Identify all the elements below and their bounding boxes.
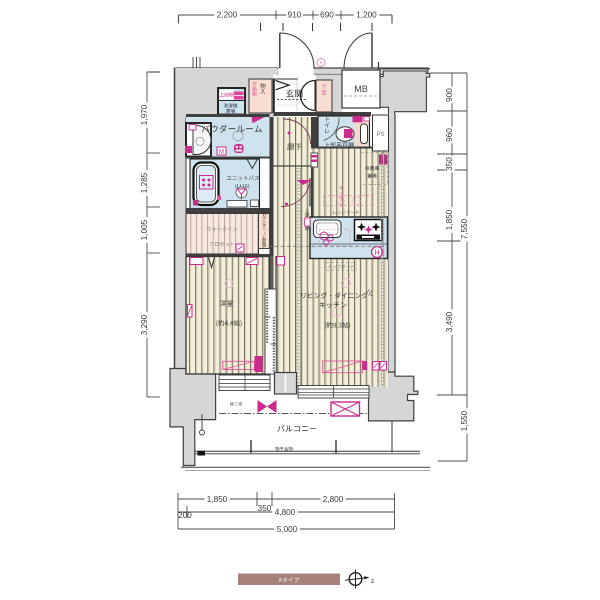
svg-text:3,490: 3,490 bbox=[445, 311, 454, 332]
svg-text:2,800: 2,800 bbox=[323, 495, 344, 504]
svg-text:1,970: 1,970 bbox=[140, 104, 149, 125]
svg-text:690: 690 bbox=[320, 11, 334, 20]
svg-text:1,850: 1,850 bbox=[445, 209, 454, 230]
svg-text:900: 900 bbox=[445, 88, 454, 102]
svg-text:1,005: 1,005 bbox=[140, 219, 149, 240]
svg-text:4,800: 4,800 bbox=[275, 508, 296, 517]
svg-text:910: 910 bbox=[288, 11, 302, 20]
svg-text:7,550: 7,550 bbox=[460, 218, 469, 239]
svg-text:H: H bbox=[374, 250, 379, 257]
svg-text:2,200: 2,200 bbox=[217, 11, 238, 20]
svg-text:960: 960 bbox=[445, 128, 454, 142]
svg-text:200: 200 bbox=[178, 511, 192, 520]
svg-text:PS: PS bbox=[376, 132, 384, 138]
svg-text:1,550: 1,550 bbox=[460, 410, 469, 431]
svg-text:1,200: 1,200 bbox=[356, 11, 377, 20]
svg-text:3,290: 3,290 bbox=[140, 314, 149, 335]
svg-text:M: M bbox=[219, 150, 224, 156]
svg-text:5,000: 5,000 bbox=[277, 525, 298, 534]
svg-text:MB: MB bbox=[354, 84, 368, 94]
svg-text:1,285: 1,285 bbox=[140, 172, 149, 193]
svg-text:350: 350 bbox=[445, 157, 454, 171]
svg-text:1,850: 1,850 bbox=[207, 495, 228, 504]
